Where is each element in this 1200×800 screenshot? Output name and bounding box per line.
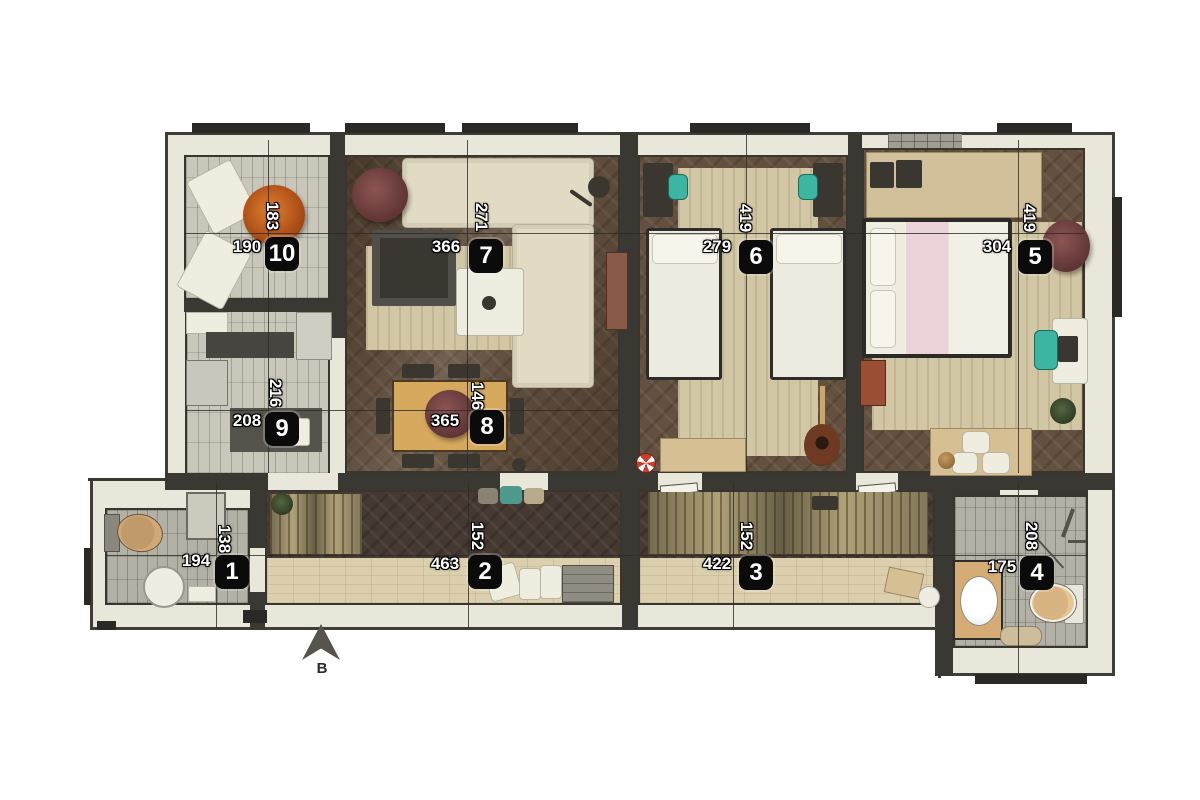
dining-chair — [402, 364, 434, 378]
desk-chair — [1034, 330, 1058, 370]
room9-number-badge: 9 — [265, 412, 299, 446]
window-lintel — [997, 123, 1072, 133]
wall-hall3-bath2 — [935, 480, 953, 676]
floor-lamp — [588, 176, 610, 198]
bed-pillow — [776, 234, 842, 264]
clothes-item — [500, 486, 522, 504]
clothes-item — [524, 488, 544, 504]
dining-chair — [448, 454, 480, 468]
door-opening — [268, 473, 338, 490]
room10-dim-vertical: 183 — [262, 202, 282, 230]
window-lintel — [462, 123, 578, 133]
bedroom5-small-plant — [1050, 398, 1076, 424]
dining-chair — [448, 364, 480, 378]
kitchen-cabinet — [296, 312, 332, 360]
sofa-chaise — [512, 224, 594, 388]
room3-dim-vertical: 152 — [736, 522, 756, 550]
wall-kitchen-living — [330, 300, 345, 338]
window-lintel-left — [84, 548, 91, 605]
room5-dim-horizontal: 304 — [983, 237, 1011, 257]
wall-bath2-top — [1038, 483, 1088, 495]
window-lintel — [690, 123, 810, 133]
nightstand-lamp — [798, 174, 818, 200]
bathroom-fixture — [188, 586, 216, 602]
guitar-body — [804, 424, 840, 466]
measure-line-v — [746, 134, 747, 473]
entry-door — [243, 610, 267, 623]
room6-dim-horizontal: 279 — [703, 237, 731, 257]
room6-number-badge: 6 — [739, 240, 773, 274]
room2-dim-horizontal: 463 — [431, 554, 459, 574]
room3-dim-horizontal: 422 — [703, 554, 731, 574]
room9-dim-vertical: 216 — [265, 379, 285, 407]
dining-chair — [510, 398, 524, 434]
room8-dim-vertical: 146 — [467, 382, 487, 410]
side-table — [860, 360, 886, 406]
room5-number-badge: 5 — [1018, 240, 1052, 274]
room10-number-badge: 10 — [265, 237, 299, 271]
room3-number-badge: 3 — [739, 556, 773, 590]
shoe-dresser — [562, 565, 614, 603]
pouf — [540, 565, 562, 599]
nightstand-lamp — [668, 174, 688, 200]
measure-line-h — [105, 555, 1088, 556]
toy-ball — [636, 453, 656, 473]
bench-cushion — [952, 452, 978, 474]
kitchen-counter — [206, 332, 294, 358]
north-arrow-label: B — [317, 660, 328, 677]
towel-rail — [1068, 540, 1086, 543]
clothes-item — [478, 488, 498, 504]
bench-cushion — [962, 431, 990, 454]
table-decor — [482, 296, 496, 310]
window-lintel — [345, 123, 445, 133]
room7-dim-horizontal: 366 — [432, 237, 460, 257]
kitchen-appliance — [186, 360, 228, 406]
room8-number-badge: 8 — [470, 410, 504, 444]
room1-dim-horizontal: 194 — [182, 551, 210, 571]
room2-dim-vertical: 152 — [467, 522, 487, 550]
window-lintel-bottom — [975, 674, 1087, 684]
room1-number-badge: 1 — [215, 555, 249, 589]
room10-dim-horizontal: 190 — [233, 237, 261, 257]
room5-dim-vertical: 419 — [1019, 204, 1039, 232]
entry-threshold — [97, 621, 116, 630]
room9-dim-horizontal: 208 — [233, 411, 261, 431]
wall-bath1-hall — [250, 480, 265, 548]
plant-pot — [512, 458, 526, 472]
wall-bedroom6-bedroom5 — [848, 132, 862, 480]
room6-dim-vertical: 419 — [735, 204, 755, 232]
bathroom-sink — [143, 566, 185, 608]
bed-pillow — [870, 228, 896, 286]
room7-number-badge: 7 — [469, 239, 503, 273]
dresser — [660, 438, 746, 472]
vanity-sink — [960, 576, 998, 626]
measure-line-h — [184, 233, 1085, 234]
measure-line-v — [1018, 140, 1019, 473]
room4-dim-vertical: 208 — [1021, 522, 1041, 550]
room7-dim-vertical: 271 — [471, 203, 491, 231]
bench-cushion — [982, 452, 1010, 474]
room2-number-badge: 2 — [468, 555, 502, 589]
living-plant — [352, 168, 408, 222]
wooden-ball — [938, 452, 955, 469]
measure-line-v — [467, 140, 468, 473]
sofa — [402, 158, 594, 228]
floor-plan: 138 194 1 152 463 2 152 422 3 208 175 4 … — [0, 0, 1200, 800]
bed-pillow — [870, 290, 896, 348]
room8-dim-horizontal: 365 — [431, 411, 459, 431]
measure-line-v — [733, 483, 734, 628]
desk-laptop — [1058, 336, 1078, 362]
ball — [918, 586, 940, 608]
measure-line-v — [216, 483, 217, 628]
measure-line-v — [468, 483, 469, 628]
storage-box — [896, 160, 922, 188]
kitchen-cabinet — [186, 312, 228, 334]
sideboard — [606, 252, 628, 330]
entry-plant — [271, 493, 293, 515]
measure-line-v — [1018, 483, 1019, 673]
wardrobe-handle — [812, 496, 838, 510]
window-lintel-right — [1112, 197, 1122, 317]
wall-bath2-top — [948, 483, 1000, 495]
room4-dim-horizontal: 175 — [988, 557, 1016, 577]
dining-chair — [376, 398, 390, 434]
pouf — [519, 568, 541, 600]
wall-balcony-living — [330, 132, 345, 315]
dining-chair — [402, 454, 434, 468]
hall-rug — [648, 492, 928, 554]
storage-box — [870, 162, 894, 188]
room4-number-badge: 4 — [1020, 556, 1054, 590]
room1-dim-vertical: 138 — [214, 525, 234, 553]
bath-mat — [1000, 626, 1042, 646]
window-lintel — [192, 123, 310, 133]
wall-step-edge — [88, 478, 168, 481]
